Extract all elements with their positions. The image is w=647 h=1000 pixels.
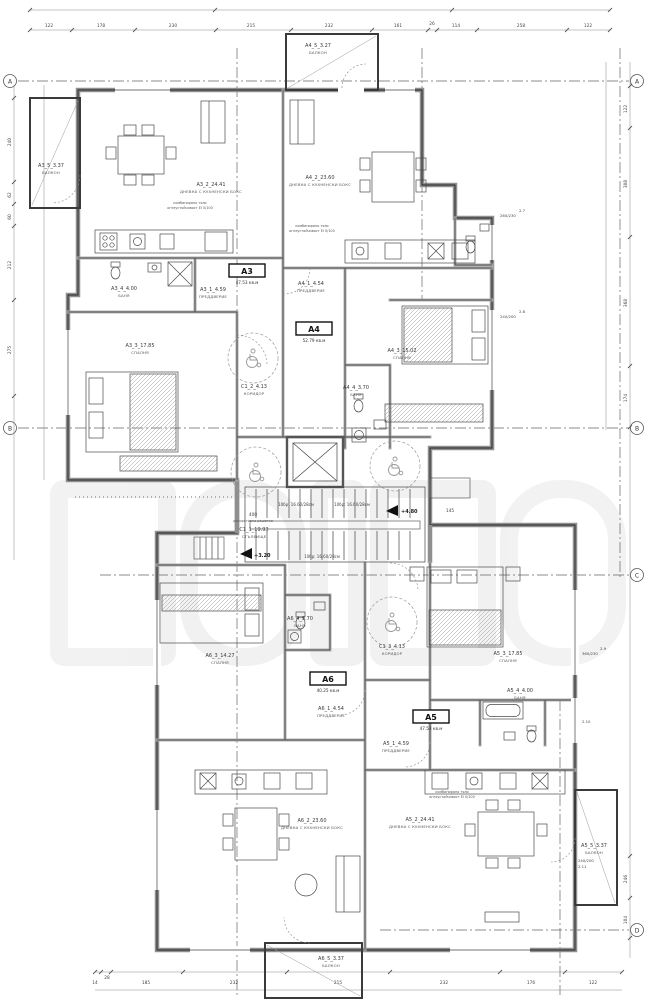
- dim-left-0: 240: [7, 138, 13, 146]
- room-name-a5-bath: БАНЯ: [514, 695, 526, 700]
- grid-bubble-b-left: B: [8, 426, 12, 433]
- room-name-a5-living: ДНЕВНА С КУХНЕНСКИ БОКС: [389, 824, 451, 829]
- grid-lines: [18, 48, 629, 995]
- room-code-a5-bath: А5_4_4.00: [507, 688, 533, 694]
- apartment-area-a6: 40.25 кв.м: [317, 688, 340, 693]
- room-code-a4-living: А4_2_23.60: [305, 175, 334, 181]
- room-code-a5-living: А5_2_24.41: [405, 817, 434, 823]
- floor-plan: A B A B C D: [0, 0, 647, 1000]
- window-tag-27: 2.7: [519, 208, 526, 213]
- room-code-a4-bath: А4_4_3.70: [343, 385, 369, 391]
- dim-bottom-0: 14: [92, 980, 98, 986]
- room-name-a5-entry: ПРЕДДВЕРИЕ: [382, 748, 410, 753]
- window-tag-211: 2.11: [578, 864, 587, 869]
- dim-top-7: 114: [452, 23, 460, 29]
- room-code-a4-entry: А4_1_4.54: [298, 281, 324, 287]
- window-tag-210: 2.10: [582, 719, 591, 724]
- room-code-a6-bath: А6_4_3.70: [287, 616, 313, 622]
- window-size-27: 260/230: [500, 213, 516, 218]
- bath-fixtures: [111, 224, 536, 742]
- room-code-corridor-lower: С1_3_4.13: [379, 644, 405, 650]
- room-name-a4-entry: ПРЕДДВЕРИЕ: [297, 288, 325, 293]
- dim-bottom-7: 122: [589, 980, 597, 986]
- room-code-a3-living: А3_2_24.41: [196, 182, 225, 188]
- dim-top-5: 161: [394, 23, 402, 29]
- room-name-staircase: СТЪЛБИЩЕ: [242, 534, 267, 539]
- apartment-id-a5: А5: [425, 713, 437, 722]
- apartment-id-a6: А6: [322, 675, 334, 684]
- dim-top-9: 122: [584, 23, 592, 29]
- dim-left-2: 60: [7, 214, 13, 220]
- grid-bubbles: A B A B C D: [4, 75, 644, 937]
- room-name-a4-bath: БАНЯ: [350, 392, 362, 397]
- room-code-a5-entry: А5_1_4.59: [383, 741, 409, 747]
- dim-top-2: 230: [169, 23, 177, 29]
- room-name-a3-bath: БАНЯ: [118, 293, 130, 298]
- fire-note-3a: комбинирано тяло: [435, 790, 468, 794]
- dim-bottom-5: 232: [440, 980, 448, 986]
- room-name-a6-living: ДНЕВНА С КУХНЕНСКИ БОКС: [281, 825, 343, 830]
- fire-note-3b: огнеустойчивост EI 0/100: [429, 795, 474, 799]
- dimension-values: 122 178 230 215 232 161 26 114 258 122 1…: [7, 21, 629, 986]
- dim-left-4: 275: [7, 346, 13, 354]
- dim-right-1: 308: [623, 180, 629, 188]
- grid-bubble-b-right: B: [635, 426, 639, 433]
- room-name-a3-balcony: БАЛКОН: [42, 170, 60, 175]
- dim-bottom-3: 232: [230, 980, 238, 986]
- dim-bottom-6: 176: [527, 980, 535, 986]
- apartment-id-a3: А3: [241, 267, 253, 276]
- dim-right-5: 104: [623, 916, 629, 924]
- dim-top-8: 258: [517, 23, 525, 29]
- room-name-a3-entry: ПРЕДДВЕРИЕ: [199, 294, 227, 299]
- floor-plan-sheet: A B A B C D: [0, 0, 647, 1000]
- dim-bottom-4: 215: [334, 980, 342, 986]
- room-code-a4-bedroom: А4_3_15.02: [387, 348, 416, 354]
- room-code-a6-bedroom: А6_3_14.27: [205, 653, 234, 659]
- dim-top-0: 122: [45, 23, 53, 29]
- window-size-211: 240/200: [578, 858, 594, 863]
- room-code-a3-entry: А3_1_4.59: [200, 287, 226, 293]
- porch-dim: 145: [446, 508, 454, 514]
- room-code-corridor-upper: С1_2_4.13: [241, 384, 267, 390]
- dim-bottom-2: 185: [142, 980, 150, 986]
- room-code-a6-balcony: А6_5_3.37: [318, 956, 344, 962]
- room-name-a5-balcony: БАЛКОН: [585, 850, 603, 855]
- room-labels: А3_5_3.37 БАЛКОН А3_2_24.41 ДНЕВНА С КУХ…: [38, 43, 607, 968]
- stair-notes: 10бр: 16.60/28см 10бр: 16.60/28см 10бр: …: [278, 502, 370, 559]
- dim-bottom-1: 28: [104, 975, 110, 981]
- stair-note-3: 10бр: 16.60/28см: [304, 554, 340, 559]
- fire-note-1b: огнеустойчивост EI 0/100: [167, 206, 212, 210]
- wheelchair-icon: [247, 349, 403, 632]
- dim-left-1: 62: [7, 192, 13, 198]
- room-code-a3-balcony: А3_5_3.37: [38, 163, 64, 169]
- dim-top-4: 232: [325, 23, 333, 29]
- room-code-a3-bath: А3_4_4.00: [111, 286, 137, 292]
- room-name-a6-entry: ПРЕДДВЕРИЕ: [317, 713, 345, 718]
- room-code-a5-balcony: А5_5_3.37: [581, 843, 607, 849]
- level-mid: +3.20: [254, 553, 271, 559]
- window-tag-28: 2.8: [519, 309, 526, 314]
- room-code-a5-bedroom: А5_3_17.85: [493, 651, 522, 657]
- stair-note-2: 10бр: 16.60/28см: [334, 502, 370, 507]
- apartment-area-a3: 47.53 кв.м: [236, 280, 259, 285]
- dim-top-3: 215: [247, 23, 255, 29]
- grid-bubble-d-right: D: [635, 928, 640, 935]
- room-code-staircase: С1_1_19.93: [239, 527, 268, 533]
- room-code-a4-balcony: А4_5_3.27: [305, 43, 331, 49]
- stair-note-1: 10бр: 16.60/28см: [278, 502, 314, 507]
- dim-right-0: 122: [623, 105, 629, 113]
- fire-note-2a: комбинирано тяло: [295, 224, 328, 228]
- room-name-a5-bedroom: СПАЛНЯ: [499, 658, 517, 663]
- room-name-corridor-upper: КОРИДОР: [244, 391, 265, 396]
- level-upper: +4.80: [401, 509, 418, 515]
- grille-note: декоративна решетка: [233, 519, 273, 523]
- room-name-a6-bedroom: СПАЛНЯ: [211, 660, 229, 665]
- fire-note-1a: комбинирано тяло: [173, 201, 206, 205]
- dim-right-3: 174: [623, 394, 629, 402]
- apartment-area-a4: 52.79 кв.м: [303, 338, 326, 343]
- window-size-29: 360/230: [582, 651, 598, 656]
- room-name-a6-bath: БАНЯ: [294, 623, 306, 628]
- dim-right-4: 246: [623, 875, 629, 883]
- grid-bubble-c-right: C: [635, 573, 639, 580]
- fire-note-2b: огнеустойчивост EI 0/100: [289, 229, 334, 233]
- room-code-a6-entry: А6_1_4.54: [318, 706, 344, 712]
- apartment-id-a4: А4: [308, 325, 320, 334]
- room-code-a6-living: А6_2_23.60: [297, 818, 326, 824]
- window-size-28: 240/200: [500, 314, 516, 319]
- room-name-corridor-lower: КОРИДОР: [382, 651, 403, 656]
- room-name-a3-living: ДНЕВНА С КУХНЕНСКИ БОКС: [180, 189, 242, 194]
- dim-right-2: 368: [623, 299, 629, 307]
- dim-left-3: 212: [7, 261, 13, 269]
- grille-length: 400: [249, 512, 257, 518]
- apartment-area-a5: 47.53 кв.м: [420, 726, 443, 731]
- room-code-a3-bedroom: А3_3_17.85: [125, 343, 154, 349]
- dim-top-6: 26: [429, 21, 435, 27]
- room-name-a4-living: ДНЕВНА С КУХНЕНСКИ БОКС: [289, 182, 351, 187]
- room-name-a4-bedroom: СПАЛНЯ: [393, 355, 411, 360]
- window-tag-29: 2.9: [600, 646, 607, 651]
- dim-top-1: 178: [97, 23, 105, 29]
- room-name-a6-balcony: БАЛКОН: [322, 963, 340, 968]
- room-name-a3-bedroom: СПАЛНЯ: [131, 350, 149, 355]
- room-name-a4-balcony: БАЛКОН: [309, 50, 327, 55]
